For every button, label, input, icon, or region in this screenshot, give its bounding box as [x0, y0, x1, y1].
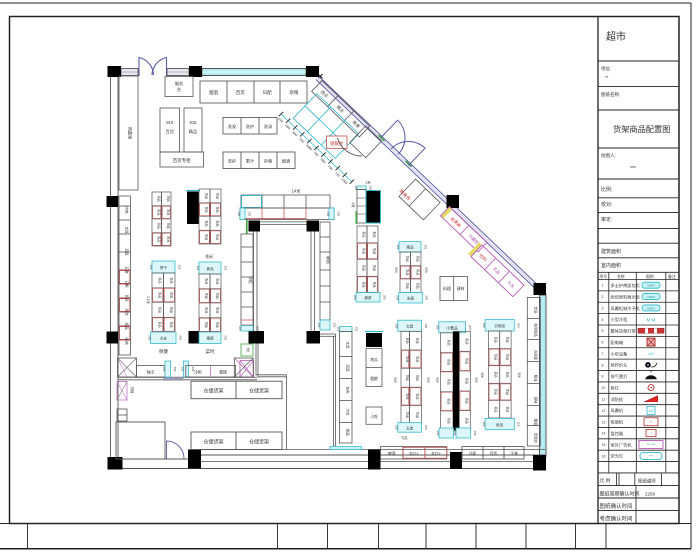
svg-text:905: 905 — [474, 377, 478, 383]
svg-text:消防栓: 消防栓 — [611, 396, 624, 403]
svg-text:室内面积: 室内面积 — [601, 262, 621, 269]
svg-text:16: 16 — [602, 454, 606, 458]
svg-text:货品: 货品 — [447, 340, 452, 346]
svg-text:图纸确认时间: 图纸确认时间 — [600, 502, 633, 510]
svg-text:13: 13 — [602, 420, 606, 424]
svg-text:货品: 货品 — [362, 248, 367, 254]
svg-text:纸品: 纸品 — [125, 322, 130, 330]
svg-text:建材: 建材 — [457, 285, 465, 291]
svg-text:精品: 精品 — [406, 245, 414, 250]
svg-text:米面: 米面 — [407, 296, 415, 301]
svg-text:205: 205 — [382, 295, 386, 300]
svg-text:百货: 百货 — [490, 451, 498, 456]
svg-text:菜时: 菜时 — [206, 348, 215, 355]
svg-text:2米: 2米 — [351, 202, 356, 208]
svg-text:12: 12 — [602, 409, 606, 413]
svg-text:货品: 货品 — [405, 283, 410, 289]
svg-text:货品: 货品 — [216, 220, 221, 226]
svg-text:205: 205 — [223, 266, 227, 271]
svg-text:大米: 大米 — [160, 336, 168, 341]
svg-text:洗护: 洗护 — [228, 158, 236, 165]
svg-text:苏打Y: 苏打Y — [431, 451, 441, 456]
svg-text:货品: 货品 — [494, 354, 499, 360]
svg-text:百货: 百货 — [166, 128, 174, 135]
svg-text:205: 205 — [255, 326, 259, 331]
svg-text:货品: 货品 — [169, 307, 174, 313]
svg-text:货品: 货品 — [506, 371, 511, 377]
svg-text:多士炉烤面包机: 多士炉烤面包机 — [611, 282, 641, 289]
svg-text:日用: 日用 — [125, 280, 130, 288]
svg-text:文具: 文具 — [125, 226, 130, 234]
svg-text:货品: 货品 — [216, 234, 221, 240]
svg-text:室外广告机: 室外广告机 — [611, 441, 633, 448]
svg-text:205: 205 — [395, 425, 399, 430]
svg-text:1: 1 — [602, 284, 604, 288]
svg-text:整体货架灯带: 整体货架灯带 — [611, 328, 636, 335]
svg-text:**: ** — [605, 75, 609, 80]
svg-text:货品: 货品 — [416, 283, 421, 289]
svg-text:排气罩灯: 排气罩灯 — [611, 373, 629, 380]
svg-text:飞吕: 飞吕 — [400, 435, 408, 440]
svg-text:205: 205 — [354, 327, 358, 332]
svg-text:货品: 货品 — [216, 278, 221, 284]
svg-text:监控器: 监控器 — [611, 430, 624, 437]
svg-text:货品: 货品 — [216, 293, 221, 299]
svg-text:地瓜: 地瓜 — [370, 357, 378, 362]
svg-text:2: 2 — [602, 295, 604, 299]
svg-text:2258: 2258 — [645, 492, 656, 497]
svg-text:调味: 调味 — [534, 397, 539, 404]
svg-text:汽车: 汽车 — [346, 408, 351, 416]
svg-text:货品: 货品 — [169, 277, 174, 283]
svg-text:货品: 货品 — [447, 418, 452, 424]
svg-text:五金: 五金 — [406, 425, 414, 430]
svg-text:货品: 货品 — [506, 389, 511, 395]
svg-text:货品: 货品 — [157, 236, 162, 242]
svg-text:百货专柜: 百货专柜 — [173, 157, 191, 164]
svg-text:货品: 货品 — [416, 256, 421, 262]
svg-text:烟酒: 烟酒 — [534, 419, 539, 426]
svg-text:205: 205 — [482, 422, 486, 427]
svg-text:仓储货架: 仓储货架 — [249, 388, 269, 395]
svg-text:荧光灯: 荧光灯 — [611, 453, 624, 460]
svg-text:205: 205 — [162, 367, 166, 372]
svg-text:货品: 货品 — [205, 293, 210, 299]
svg-text:205: 205 — [517, 323, 521, 328]
svg-text:205: 205 — [177, 265, 181, 270]
svg-text:超市: 超市 — [606, 30, 626, 43]
svg-text:MWD: MWD — [647, 284, 655, 288]
svg-text:货品: 货品 — [465, 338, 470, 344]
svg-text:货品: 货品 — [465, 378, 470, 384]
svg-text:粗粮: 粗粮 — [370, 376, 378, 381]
svg-text:干果: 干果 — [510, 451, 518, 456]
svg-text:日用品: 日用品 — [494, 323, 505, 328]
svg-text:10: 10 — [602, 386, 606, 390]
svg-text:货品: 货品 — [494, 389, 499, 395]
svg-text:百货: 百货 — [125, 294, 130, 302]
svg-text:205: 205 — [424, 425, 428, 430]
svg-text:货品: 货品 — [166, 223, 171, 229]
svg-text:图纸周期确认时间: 图纸周期确认时间 — [600, 491, 640, 498]
svg-text:900: 900 — [426, 377, 430, 383]
svg-text:货品: 货品 — [465, 358, 470, 364]
svg-text:货品: 货品 — [158, 292, 163, 298]
svg-text:205: 205 — [237, 211, 241, 216]
svg-text:101: 101 — [648, 352, 654, 356]
svg-text:8: 8 — [602, 363, 604, 367]
svg-text:306: 306 — [517, 372, 521, 378]
svg-text:建筑面积: 建筑面积 — [601, 248, 621, 255]
svg-text:货品: 货品 — [447, 398, 452, 404]
svg-text:11: 11 — [602, 397, 606, 401]
svg-text:货品: 货品 — [416, 269, 421, 275]
svg-text:粮油: 粮油 — [534, 375, 539, 382]
svg-text:205: 205 — [326, 211, 330, 216]
svg-text:915: 915 — [190, 120, 198, 125]
svg-text:洗发: 洗发 — [228, 123, 237, 130]
svg-text:烟酒: 烟酒 — [282, 158, 290, 165]
svg-text:205: 205 — [336, 327, 340, 332]
svg-text:900: 900 — [394, 267, 398, 273]
svg-text:205: 205 — [147, 335, 151, 340]
svg-text:205: 205 — [223, 335, 227, 340]
svg-text:5: 5 — [602, 329, 604, 333]
svg-text:食品: 食品 — [206, 266, 214, 271]
svg-text:MWD: MWD — [647, 295, 655, 299]
svg-text:货品: 货品 — [405, 269, 410, 275]
svg-text:205: 205 — [332, 323, 336, 328]
svg-text:货品: 货品 — [158, 277, 163, 283]
svg-text:205: 205 — [196, 266, 200, 271]
svg-text:货品: 货品 — [362, 265, 367, 271]
svg-text:2.1米: 2.1米 — [146, 296, 151, 304]
svg-text:15: 15 — [602, 443, 606, 447]
svg-text:风幕柜制冷子机: 风幕柜制冷子机 — [611, 305, 641, 312]
svg-text:苏打Y: 苏打Y — [409, 451, 419, 456]
svg-text:仓储货架: 仓储货架 — [203, 388, 223, 395]
svg-text:啤酒: 啤酒 — [388, 451, 396, 456]
svg-text:精品: 精品 — [189, 128, 197, 135]
svg-text:货品: 货品 — [362, 282, 367, 288]
svg-text:收银机: 收银机 — [611, 419, 624, 426]
svg-text:货品: 货品 — [205, 322, 210, 328]
svg-text:205: 205 — [396, 295, 400, 300]
svg-text:4: 4 — [602, 318, 604, 322]
svg-text:休闲: 休闲 — [205, 254, 213, 259]
svg-text:货品: 货品 — [216, 307, 221, 313]
svg-text:205: 205 — [196, 335, 200, 340]
svg-text:205: 205 — [482, 323, 486, 328]
svg-text:货品: 货品 — [169, 322, 174, 328]
svg-text:6: 6 — [602, 341, 604, 345]
svg-text:M M: M M — [647, 317, 656, 322]
svg-text:货品: 货品 — [447, 379, 452, 385]
svg-text:2米: 2米 — [365, 180, 371, 185]
svg-text:***: *** — [630, 166, 636, 172]
svg-text:910: 910 — [166, 120, 174, 125]
svg-text:用品: 用品 — [346, 428, 351, 436]
svg-text:205: 205 — [436, 431, 440, 436]
svg-text:促销台: 促销台 — [534, 433, 539, 444]
svg-text:煎炸炉头: 煎炸炉头 — [611, 362, 628, 369]
svg-text:序号: 序号 — [600, 274, 608, 279]
svg-text:货品: 货品 — [166, 196, 171, 202]
svg-text:货品: 货品 — [166, 236, 171, 242]
svg-text:风幕机: 风幕机 — [611, 407, 624, 414]
svg-text:台布: 台布 — [346, 386, 351, 394]
svg-text:货品: 货品 — [205, 234, 210, 240]
svg-text:校对:: 校对: — [601, 201, 612, 208]
svg-text:14米: 14米 — [292, 188, 302, 195]
svg-text:射灯: 射灯 — [611, 384, 620, 391]
svg-text:货品: 货品 — [362, 231, 367, 237]
svg-text:货架商品配置图: 货架商品配置图 — [613, 124, 670, 134]
svg-text:货品: 货品 — [416, 393, 421, 399]
svg-text:205: 205 — [473, 431, 477, 436]
svg-text:果汁: 果汁 — [246, 158, 255, 165]
svg-text:205: 205 — [423, 245, 427, 250]
svg-text:205: 205 — [517, 422, 521, 427]
svg-text:205: 205 — [436, 325, 440, 330]
svg-text:冷柜: 冷柜 — [248, 276, 253, 284]
svg-text:洗涤: 洗涤 — [264, 123, 272, 130]
svg-text:货品: 货品 — [465, 418, 470, 424]
svg-text:205: 205 — [424, 323, 428, 328]
svg-text:205: 205 — [425, 295, 429, 300]
svg-text:货品: 货品 — [416, 412, 421, 418]
svg-text:205: 205 — [336, 211, 340, 216]
svg-text:货品: 货品 — [373, 282, 378, 288]
svg-text:货品: 货品 — [447, 359, 452, 365]
svg-text:烟酒: 烟酒 — [209, 89, 218, 96]
svg-text:地址:: 地址: — [601, 65, 611, 71]
svg-text:休闲食品: 休闲食品 — [534, 323, 539, 337]
svg-text:柚子: 柚子 — [147, 370, 155, 375]
svg-text:货品: 货品 — [166, 209, 171, 215]
svg-text:仓储货架: 仓储货架 — [203, 438, 223, 445]
svg-text:货品: 货品 — [373, 265, 378, 271]
svg-text:比例:: 比例: — [601, 186, 612, 193]
svg-text:日配: 日配 — [469, 451, 477, 456]
svg-text:方便面: 方便面 — [534, 350, 539, 361]
svg-text:205: 205 — [353, 295, 357, 300]
svg-text:205: 205 — [468, 325, 472, 330]
svg-text:货品: 货品 — [205, 220, 210, 226]
svg-text:服务: 服务 — [175, 80, 184, 87]
svg-text:货品: 货品 — [494, 371, 499, 377]
svg-text:百货: 百货 — [236, 89, 245, 96]
svg-text:玩具: 玩具 — [346, 364, 351, 372]
svg-text:900: 900 — [424, 267, 428, 273]
svg-text:205: 205 — [173, 367, 177, 372]
svg-text:果蔬: 果蔬 — [206, 336, 214, 341]
svg-text:*** ***: *** *** — [647, 443, 656, 447]
svg-text:7: 7 — [602, 352, 604, 356]
svg-text:烘焙原料展示柜: 烘焙原料展示柜 — [611, 293, 640, 300]
svg-text:杂粮: 杂粮 — [264, 158, 273, 165]
svg-text:货品: 货品 — [494, 406, 499, 412]
svg-text:货品: 货品 — [494, 337, 499, 343]
svg-text:3: 3 — [602, 306, 604, 310]
svg-text:备注: 备注 — [668, 274, 676, 279]
svg-text:比 例: 比 例 — [600, 477, 611, 484]
svg-text:小吃: 小吃 — [370, 414, 378, 419]
svg-text:14: 14 — [602, 432, 606, 436]
svg-text:小食品: 小食品 — [446, 326, 458, 331]
svg-text:货品: 货品 — [205, 207, 210, 213]
svg-text:M: M — [649, 408, 653, 413]
svg-text:货品: 货品 — [465, 398, 470, 404]
svg-text:货品: 货品 — [216, 322, 221, 328]
svg-text:台: 台 — [177, 86, 181, 93]
svg-text:整理: 整理 — [219, 370, 227, 375]
svg-text:9: 9 — [602, 375, 604, 379]
svg-text:小吃设备: 小吃设备 — [611, 350, 629, 357]
svg-text:货品: 货品 — [416, 338, 421, 344]
svg-text:内衣: 内衣 — [125, 206, 130, 214]
svg-text:货品: 货品 — [205, 307, 210, 313]
svg-text:玩具: 玩具 — [125, 248, 130, 256]
svg-text:文具: 文具 — [346, 341, 351, 349]
svg-text:图纸名称:: 图纸名称: — [601, 91, 620, 98]
svg-text:货品: 货品 — [416, 375, 421, 381]
svg-text:保健: 保健 — [159, 348, 168, 355]
svg-text:MWD: MWD — [647, 306, 655, 310]
svg-text:货品: 货品 — [157, 223, 162, 229]
svg-text:风幕柜: 风幕柜 — [127, 127, 134, 140]
svg-text:蔬菜: 蔬菜 — [364, 295, 372, 300]
svg-text:图纸编号: 图纸编号 — [638, 478, 656, 485]
svg-text:考虑确认时间: 考虑确认时间 — [600, 515, 633, 523]
svg-text:205: 205 — [238, 326, 242, 331]
svg-text:205: 205 — [395, 323, 399, 328]
svg-text:货品: 货品 — [416, 356, 421, 362]
svg-text:名称: 名称 — [617, 274, 625, 279]
svg-text:货品: 货品 — [158, 307, 163, 313]
svg-text:905: 905 — [435, 377, 439, 383]
svg-text:杂粮: 杂粮 — [289, 89, 298, 96]
svg-text:料理: 料理 — [443, 285, 451, 291]
svg-text:货梯: 货梯 — [130, 387, 135, 394]
svg-text:205: 205 — [368, 185, 372, 190]
svg-text:洗护: 洗护 — [246, 123, 254, 130]
svg-text:货品: 货品 — [506, 354, 511, 360]
svg-text:306: 306 — [480, 372, 484, 378]
svg-text:饮品: 饮品 — [534, 307, 539, 314]
svg-text:小型冷柜: 小型冷柜 — [611, 316, 628, 323]
svg-text:送: 送 — [246, 347, 250, 352]
svg-text:货品: 货品 — [158, 322, 163, 328]
svg-text:饼干: 饼干 — [160, 265, 168, 270]
svg-text:鲜肉: 鲜肉 — [326, 256, 331, 264]
svg-text:205: 205 — [247, 211, 251, 216]
svg-text:205: 205 — [178, 335, 182, 340]
svg-text:205: 205 — [453, 431, 457, 436]
svg-text:货品: 货品 — [506, 337, 511, 343]
svg-text:205: 205 — [149, 265, 153, 270]
svg-text:货品: 货品 — [157, 209, 162, 215]
svg-text:205: 205 — [180, 367, 184, 372]
svg-text:绘图人:: 绘图人: — [601, 152, 616, 159]
svg-text:配电箱: 配电箱 — [611, 339, 624, 346]
svg-text:清洁: 清洁 — [125, 308, 130, 316]
svg-text:货品: 货品 — [205, 278, 210, 284]
svg-text:货品: 货品 — [205, 193, 210, 199]
svg-text:货品: 货品 — [405, 256, 410, 262]
svg-text:货品: 货品 — [506, 406, 511, 412]
svg-text:205: 205 — [317, 323, 321, 328]
svg-text:205: 205 — [396, 245, 400, 250]
svg-text:纸品: 纸品 — [496, 422, 504, 427]
svg-text:五金: 五金 — [125, 266, 130, 274]
svg-text:冷柜: 冷柜 — [194, 370, 202, 375]
svg-text:货品: 货品 — [373, 248, 378, 254]
svg-text:仓储货架: 仓储货架 — [249, 438, 269, 445]
svg-text:货品: 货品 — [169, 292, 174, 298]
svg-text:图例: 图例 — [646, 274, 654, 279]
svg-text:货品: 货品 — [157, 196, 162, 202]
svg-text:审定:: 审定: — [601, 216, 612, 223]
svg-text:货品: 货品 — [373, 231, 378, 237]
svg-text:文具: 文具 — [406, 324, 414, 329]
svg-text:收纳: 收纳 — [125, 337, 130, 345]
svg-text:900: 900 — [393, 377, 397, 383]
svg-text:货品: 货品 — [216, 193, 221, 199]
svg-text:货品: 货品 — [216, 207, 221, 213]
